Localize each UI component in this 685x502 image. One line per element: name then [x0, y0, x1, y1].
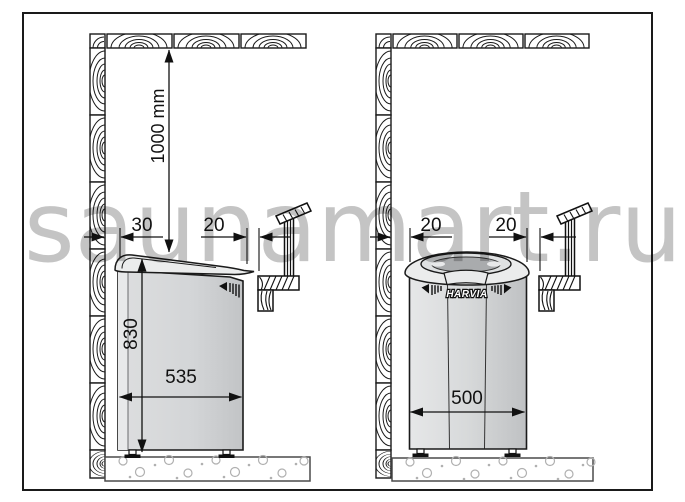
left-ceiling	[90, 32, 306, 48]
ceiling-clearance-label: 1000 mm	[148, 88, 168, 163]
left-floor	[105, 456, 310, 482]
brand-logo: HARVIA	[446, 289, 487, 300]
heater-width-label: 500	[451, 388, 483, 409]
right-ceiling	[376, 32, 589, 48]
installation-diagram: 1000 mm 30 20	[0, 0, 685, 502]
heater-depth-label: 535	[165, 367, 197, 388]
heater-body	[118, 270, 243, 450]
diagram-canvas: 1000 mm 30 20	[0, 0, 685, 502]
watermark: saunamart.ru	[24, 171, 682, 285]
heater-height-label: 830	[121, 318, 142, 350]
heater-back-panel	[118, 270, 128, 450]
heater-body	[410, 276, 527, 449]
right-floor	[392, 457, 595, 482]
heater-side-view	[115, 255, 254, 458]
